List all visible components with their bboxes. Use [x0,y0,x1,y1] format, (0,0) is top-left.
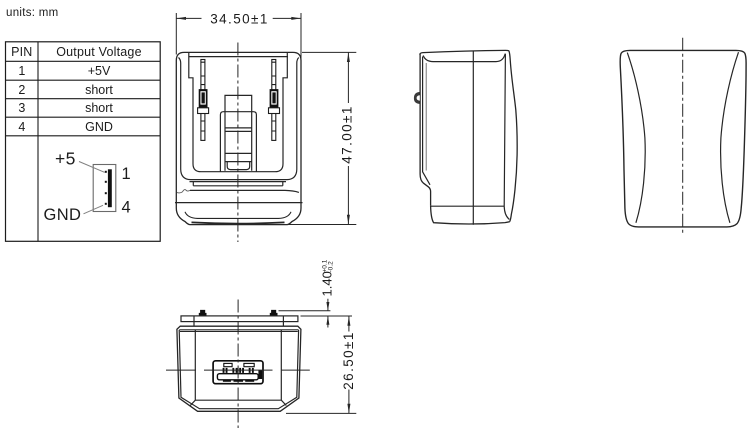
svg-text:+5: +5 [55,149,76,169]
svg-text:short: short [85,83,113,97]
svg-text:4: 4 [18,120,25,134]
svg-text:3: 3 [18,101,25,115]
svg-text:+5V: +5V [88,64,111,78]
svg-text:Output Voltage: Output Voltage [56,45,142,59]
svg-text:GND: GND [44,206,82,224]
svg-text:26.50±1: 26.50±1 [341,331,356,390]
svg-text:34.50±1: 34.50±1 [210,12,269,27]
svg-text:1: 1 [18,64,25,78]
svg-text:short: short [85,101,113,115]
svg-text:PIN: PIN [11,45,32,59]
svg-text:-0.2: -0.2 [328,261,335,273]
svg-text:units: mm: units: mm [6,7,59,19]
svg-text:2: 2 [18,83,25,97]
svg-text:GND: GND [85,120,113,134]
svg-text:1: 1 [122,165,131,183]
svg-text:1.40: 1.40 [320,271,335,296]
svg-text:47.00±1: 47.00±1 [340,105,355,164]
svg-text:4: 4 [122,199,131,217]
